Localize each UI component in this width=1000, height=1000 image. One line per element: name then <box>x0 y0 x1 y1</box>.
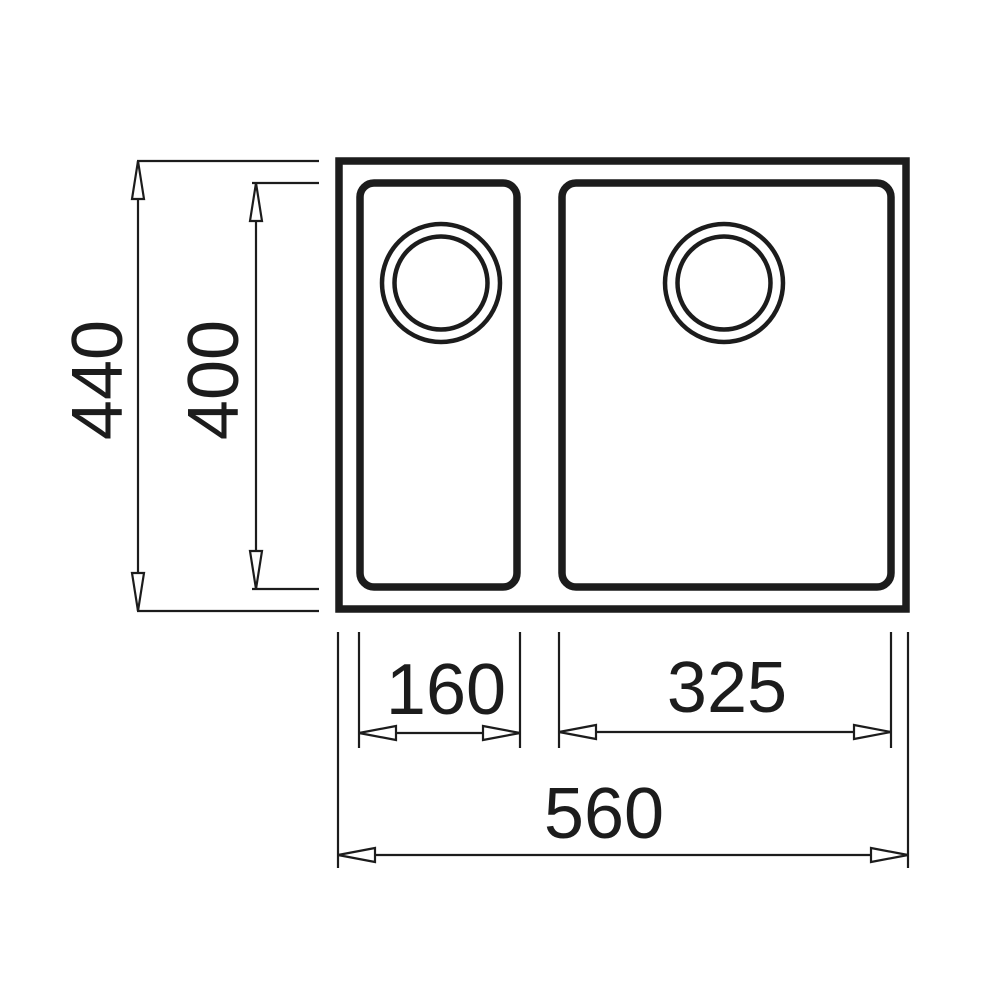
large-bowl-outline <box>562 183 891 587</box>
dim-label-overall-height: 440 <box>58 320 138 440</box>
arrowhead-down-icon <box>250 551 262 589</box>
dim-label-large-bowl-width: 325 <box>667 648 787 728</box>
large-bowl-drain-inner-circle <box>678 237 771 330</box>
small-bowl-drain-inner-circle <box>395 237 488 330</box>
large-bowl-drain-outer-circle <box>665 224 783 342</box>
arrowhead-left-icon <box>338 848 375 862</box>
arrowhead-up-icon <box>250 183 262 221</box>
dim-label-small-bowl-width: 160 <box>386 650 506 730</box>
arrowhead-up-icon <box>132 161 144 199</box>
arrowhead-left-icon <box>559 725 596 739</box>
arrowhead-right-icon <box>871 848 908 862</box>
sink-dimension-diagram: 440 400 160 325 560 <box>0 0 1000 1000</box>
dim-label-overall-width: 560 <box>544 774 664 854</box>
small-bowl-drain-outer-circle <box>382 224 500 342</box>
arrowhead-right-icon <box>854 725 891 739</box>
technical-drawing-svg: 440 400 160 325 560 <box>0 0 1000 1000</box>
dim-label-bowl-height: 400 <box>174 320 254 440</box>
small-bowl-outline <box>360 183 517 587</box>
arrowhead-down-icon <box>132 573 144 611</box>
